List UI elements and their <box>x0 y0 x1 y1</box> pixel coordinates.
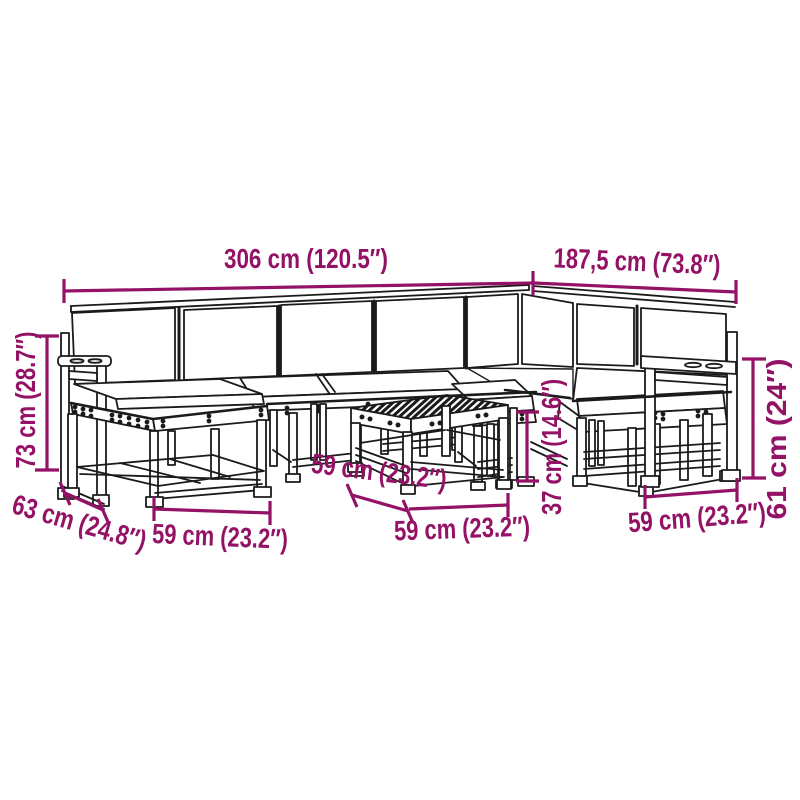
svg-text:59 cm (23.2″): 59 cm (23.2″) <box>151 518 288 555</box>
svg-text:73 cm (28.7″): 73 cm (28.7″) <box>10 332 41 469</box>
svg-text:37 cm (14.6″): 37 cm (14.6″) <box>536 379 567 515</box>
svg-text:61 cm (24″): 61 cm (24″) <box>761 359 792 520</box>
svg-text:306 cm (120.5″): 306 cm (120.5″) <box>224 243 388 274</box>
svg-text:59 cm (23.2″): 59 cm (23.2″) <box>393 511 530 547</box>
